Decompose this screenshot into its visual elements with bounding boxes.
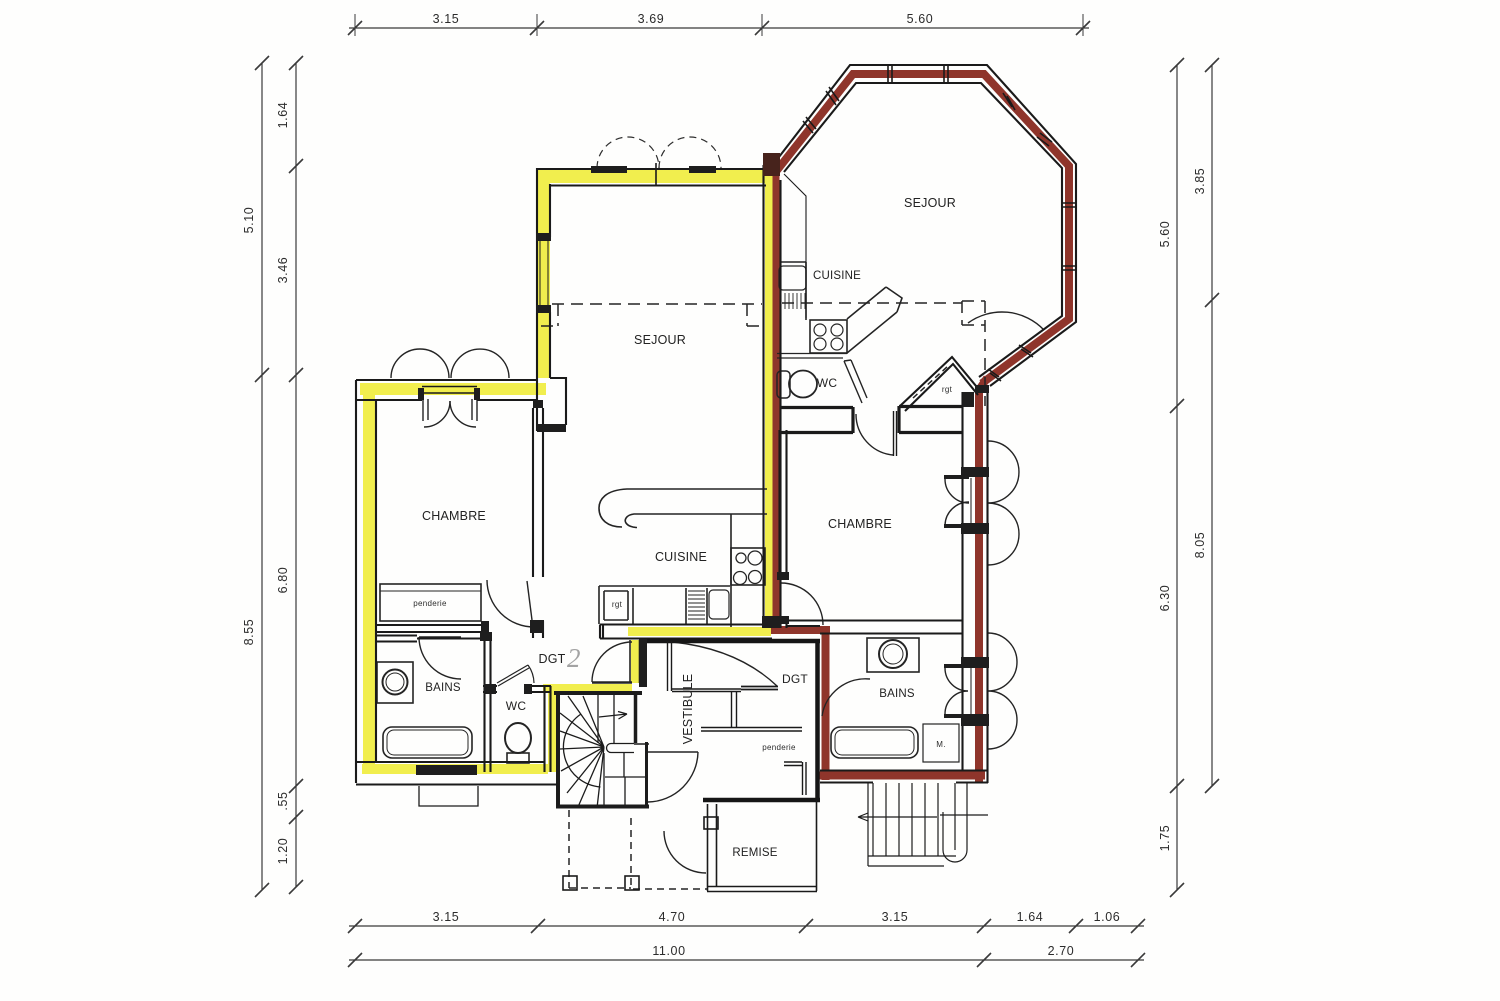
svg-text:DGT: DGT [539,652,566,666]
svg-text:5.10: 5.10 [242,207,256,234]
svg-text:CUISINE: CUISINE [813,270,861,282]
svg-text:rgt: rgt [612,600,623,609]
svg-text:5.60: 5.60 [907,12,934,26]
svg-text:WC: WC [817,376,838,390]
svg-text:6.80: 6.80 [276,567,290,594]
svg-text:rgt: rgt [942,385,953,394]
svg-text:SEJOUR: SEJOUR [904,196,956,210]
svg-text:2.70: 2.70 [1048,944,1075,958]
svg-text:BAINS: BAINS [425,682,461,694]
svg-text:WC: WC [506,699,527,713]
svg-text:1.64: 1.64 [276,102,290,129]
svg-text:5.60: 5.60 [1158,221,1172,248]
svg-text:CHAMBRE: CHAMBRE [828,517,892,531]
svg-text:2: 2 [567,643,581,673]
svg-text:DGT: DGT [782,672,808,686]
svg-text:.55: .55 [276,791,290,810]
svg-text:3.69: 3.69 [638,12,665,26]
svg-text:3.85: 3.85 [1193,168,1207,195]
svg-text:REMISE: REMISE [732,847,777,859]
svg-text:8.55: 8.55 [242,619,256,646]
svg-text:3.46: 3.46 [276,257,290,284]
svg-text:VESTIBULE: VESTIBULE [681,674,695,745]
svg-text:M.: M. [936,740,946,749]
svg-text:1.20: 1.20 [276,838,290,865]
svg-text:penderie: penderie [762,743,796,752]
svg-text:3.15: 3.15 [433,12,460,26]
svg-text:3.15: 3.15 [433,910,460,924]
svg-text:penderie: penderie [413,599,447,608]
svg-text:CHAMBRE: CHAMBRE [422,509,486,523]
svg-text:6.30: 6.30 [1158,585,1172,612]
svg-text:4.70: 4.70 [659,910,686,924]
svg-text:1.06: 1.06 [1094,910,1121,924]
svg-text:SEJOUR: SEJOUR [634,333,686,347]
svg-text:3.15: 3.15 [882,910,909,924]
svg-text:CUISINE: CUISINE [655,550,707,564]
svg-text:1.64: 1.64 [1017,910,1044,924]
svg-text:11.00: 11.00 [652,944,685,958]
svg-text:8.05: 8.05 [1193,532,1207,559]
svg-text:BAINS: BAINS [879,688,915,700]
svg-text:1.75: 1.75 [1158,825,1172,852]
